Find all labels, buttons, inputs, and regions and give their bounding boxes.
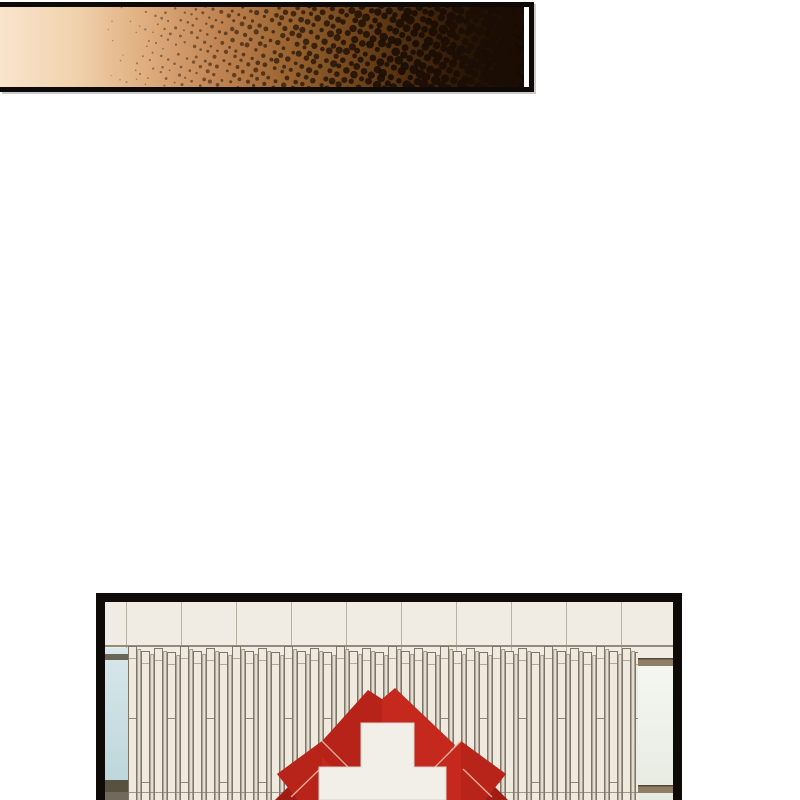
right-window	[638, 658, 673, 800]
hospital-scene	[105, 602, 673, 800]
halftone-gradient-art	[0, 7, 524, 87]
hospital-panel	[96, 593, 682, 800]
red-cross-emblem-icon	[275, 685, 508, 800]
left-window	[105, 648, 128, 800]
transition-panel	[0, 2, 534, 92]
